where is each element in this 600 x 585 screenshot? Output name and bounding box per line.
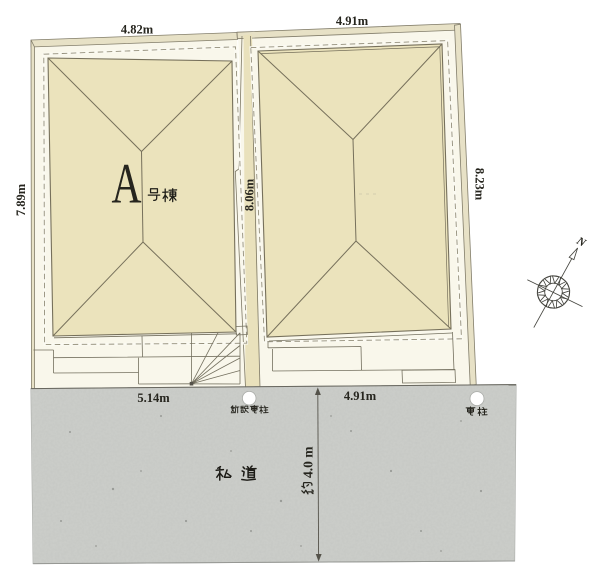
svg-text:A: A xyxy=(112,153,142,216)
svg-text:8.23m: 8.23m xyxy=(472,168,486,201)
svg-text:5.14m: 5.14m xyxy=(137,391,170,405)
svg-text:4.91m: 4.91m xyxy=(336,14,369,28)
svg-text:7.89m: 7.89m xyxy=(14,183,28,216)
svg-text:4.91m: 4.91m xyxy=(344,389,377,403)
svg-text:4.0 m: 4.0 m xyxy=(301,446,316,478)
svg-text:4.82m: 4.82m xyxy=(121,23,154,37)
svg-text:8.06m: 8.06m xyxy=(243,178,257,211)
